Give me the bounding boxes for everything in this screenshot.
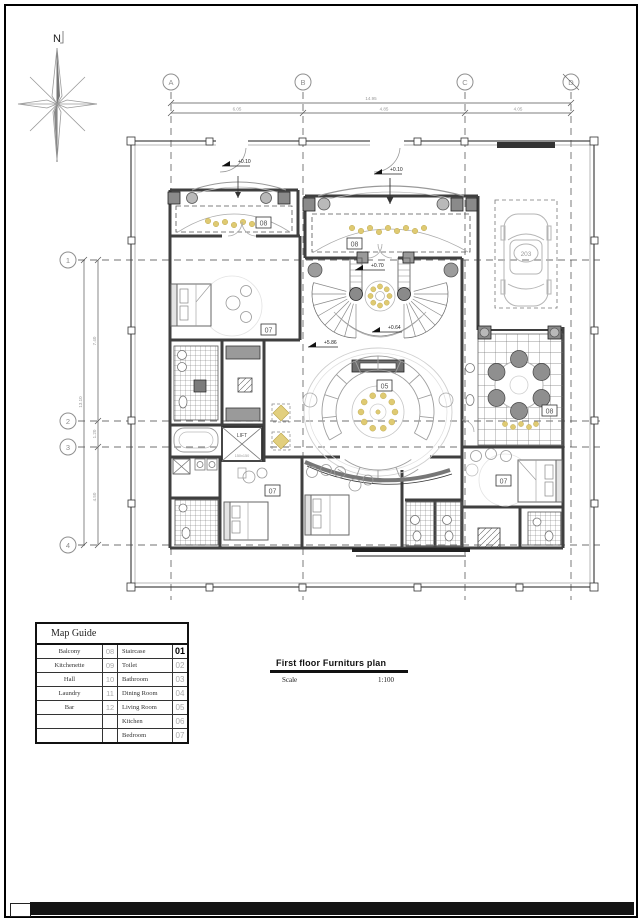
svg-text:14.95: 14.95 <box>365 96 377 101</box>
balcony-top-left: 08 <box>168 176 292 236</box>
stair-landing-flowers <box>365 281 395 311</box>
svg-text:+0.70: +0.70 <box>371 263 384 269</box>
flower-band <box>205 218 264 228</box>
room-tag: 07 <box>265 328 273 335</box>
map-guide-row: Bedroom 07 <box>37 729 187 742</box>
flower-band <box>349 225 427 235</box>
lift-size: 150x150 <box>235 454 250 458</box>
scale-value: 1:100 <box>378 676 394 684</box>
map-guide-table: Map Guide Balcony 08 Staircase 01 Kitche… <box>35 622 189 744</box>
svg-text:3: 3 <box>66 443 70 452</box>
room-tag: 07 <box>269 489 277 496</box>
bathroom-left <box>174 346 218 420</box>
drawing-title: First floor Furniturs plan <box>270 658 408 668</box>
room-tag: 07 <box>500 479 508 486</box>
svg-text:+0.64: +0.64 <box>388 325 401 331</box>
laundry <box>173 459 217 474</box>
map-guide-row: Kitchenette 09 Toilet 02 <box>37 659 187 673</box>
svg-text:4.50: 4.50 <box>92 492 97 501</box>
svg-text:13.10: 13.10 <box>78 396 83 408</box>
svg-text:4: 4 <box>66 541 70 550</box>
room-tag: 05 <box>381 384 389 391</box>
entry-porch <box>352 550 470 556</box>
svg-text:+5.86: +5.86 <box>324 340 337 346</box>
north-compass: N <box>18 31 97 162</box>
map-guide-row: Hall 10 Bathroom 03 <box>37 673 187 687</box>
map-guide-title: Map Guide <box>37 624 187 645</box>
corridor-planters <box>272 404 290 450</box>
svg-text:2: 2 <box>66 417 70 426</box>
carpet-flowers <box>358 393 398 431</box>
living-room: 05 <box>303 348 453 484</box>
svg-text:1.20: 1.20 <box>92 429 97 438</box>
lift: LIFT 150x150 <box>222 427 262 461</box>
dimension-lines-top: 14.95 6.05 4.85 4.05 <box>168 96 574 116</box>
bedroom-right: 07 <box>466 449 562 507</box>
map-guide-row: Balcony 08 Staircase 01 <box>37 645 187 659</box>
sheet-bottom-bar <box>30 902 634 915</box>
bathrooms-bottom-mid <box>406 502 462 546</box>
kitchen <box>226 346 260 421</box>
north-label: N <box>53 33 61 45</box>
room-tag: 08 <box>260 221 268 228</box>
dimension-lines-left: 13.10 7.40 1.20 4.50 <box>78 257 101 548</box>
room-tag: 08 <box>546 409 554 416</box>
bedroom-bottom-left: 07 <box>224 468 280 540</box>
bathtub-room <box>174 428 218 452</box>
title-block: First floor Furniturs plan Scale 1:100 <box>270 658 408 684</box>
svg-text:B: B <box>300 78 305 87</box>
svg-text:A: A <box>168 78 173 87</box>
floor-plan-drawing: N A B C D 1 2 3 4 <box>0 0 642 922</box>
car-gate <box>497 142 555 148</box>
map-guide-row: Laundry 11 Dining Room 04 <box>37 687 187 701</box>
map-guide-row: Bar 12 Living Room 05 <box>37 701 187 715</box>
balcony-top-mid: 08 <box>303 178 477 258</box>
elevation-hall: +0.64 <box>372 325 402 332</box>
map-guide-row: Kitchen 06 <box>37 715 187 729</box>
sofa-ring <box>322 356 434 440</box>
svg-text:+0.10: +0.10 <box>238 159 251 165</box>
room-tag: 08 <box>351 242 359 249</box>
svg-text:4.05: 4.05 <box>514 107 523 112</box>
svg-text:C: C <box>462 78 468 87</box>
elevation-living: +5.86 <box>308 340 338 347</box>
elevation-gate-left: +0.10 <box>222 159 251 166</box>
svg-text:+0.10: +0.10 <box>390 167 403 173</box>
svg-text:1: 1 <box>66 256 70 265</box>
svg-text:4.85: 4.85 <box>380 107 389 112</box>
svg-text:6.05: 6.05 <box>233 107 242 112</box>
svg-text:7.40: 7.40 <box>92 336 97 345</box>
lift-label: LIFT <box>237 433 247 439</box>
sheet-corner-mark <box>10 903 31 917</box>
car-parking: 203 <box>495 200 557 308</box>
bathroom-bottom-left <box>175 500 218 545</box>
drawing-sheet: N A B C D 1 2 3 4 <box>0 0 642 922</box>
side-toilets <box>462 364 475 433</box>
bedroom-left: 07 <box>171 276 276 336</box>
car-plate: 203 <box>521 251 532 258</box>
patio-dining: 08 <box>478 326 563 445</box>
scale-label: Scale <box>282 676 297 684</box>
